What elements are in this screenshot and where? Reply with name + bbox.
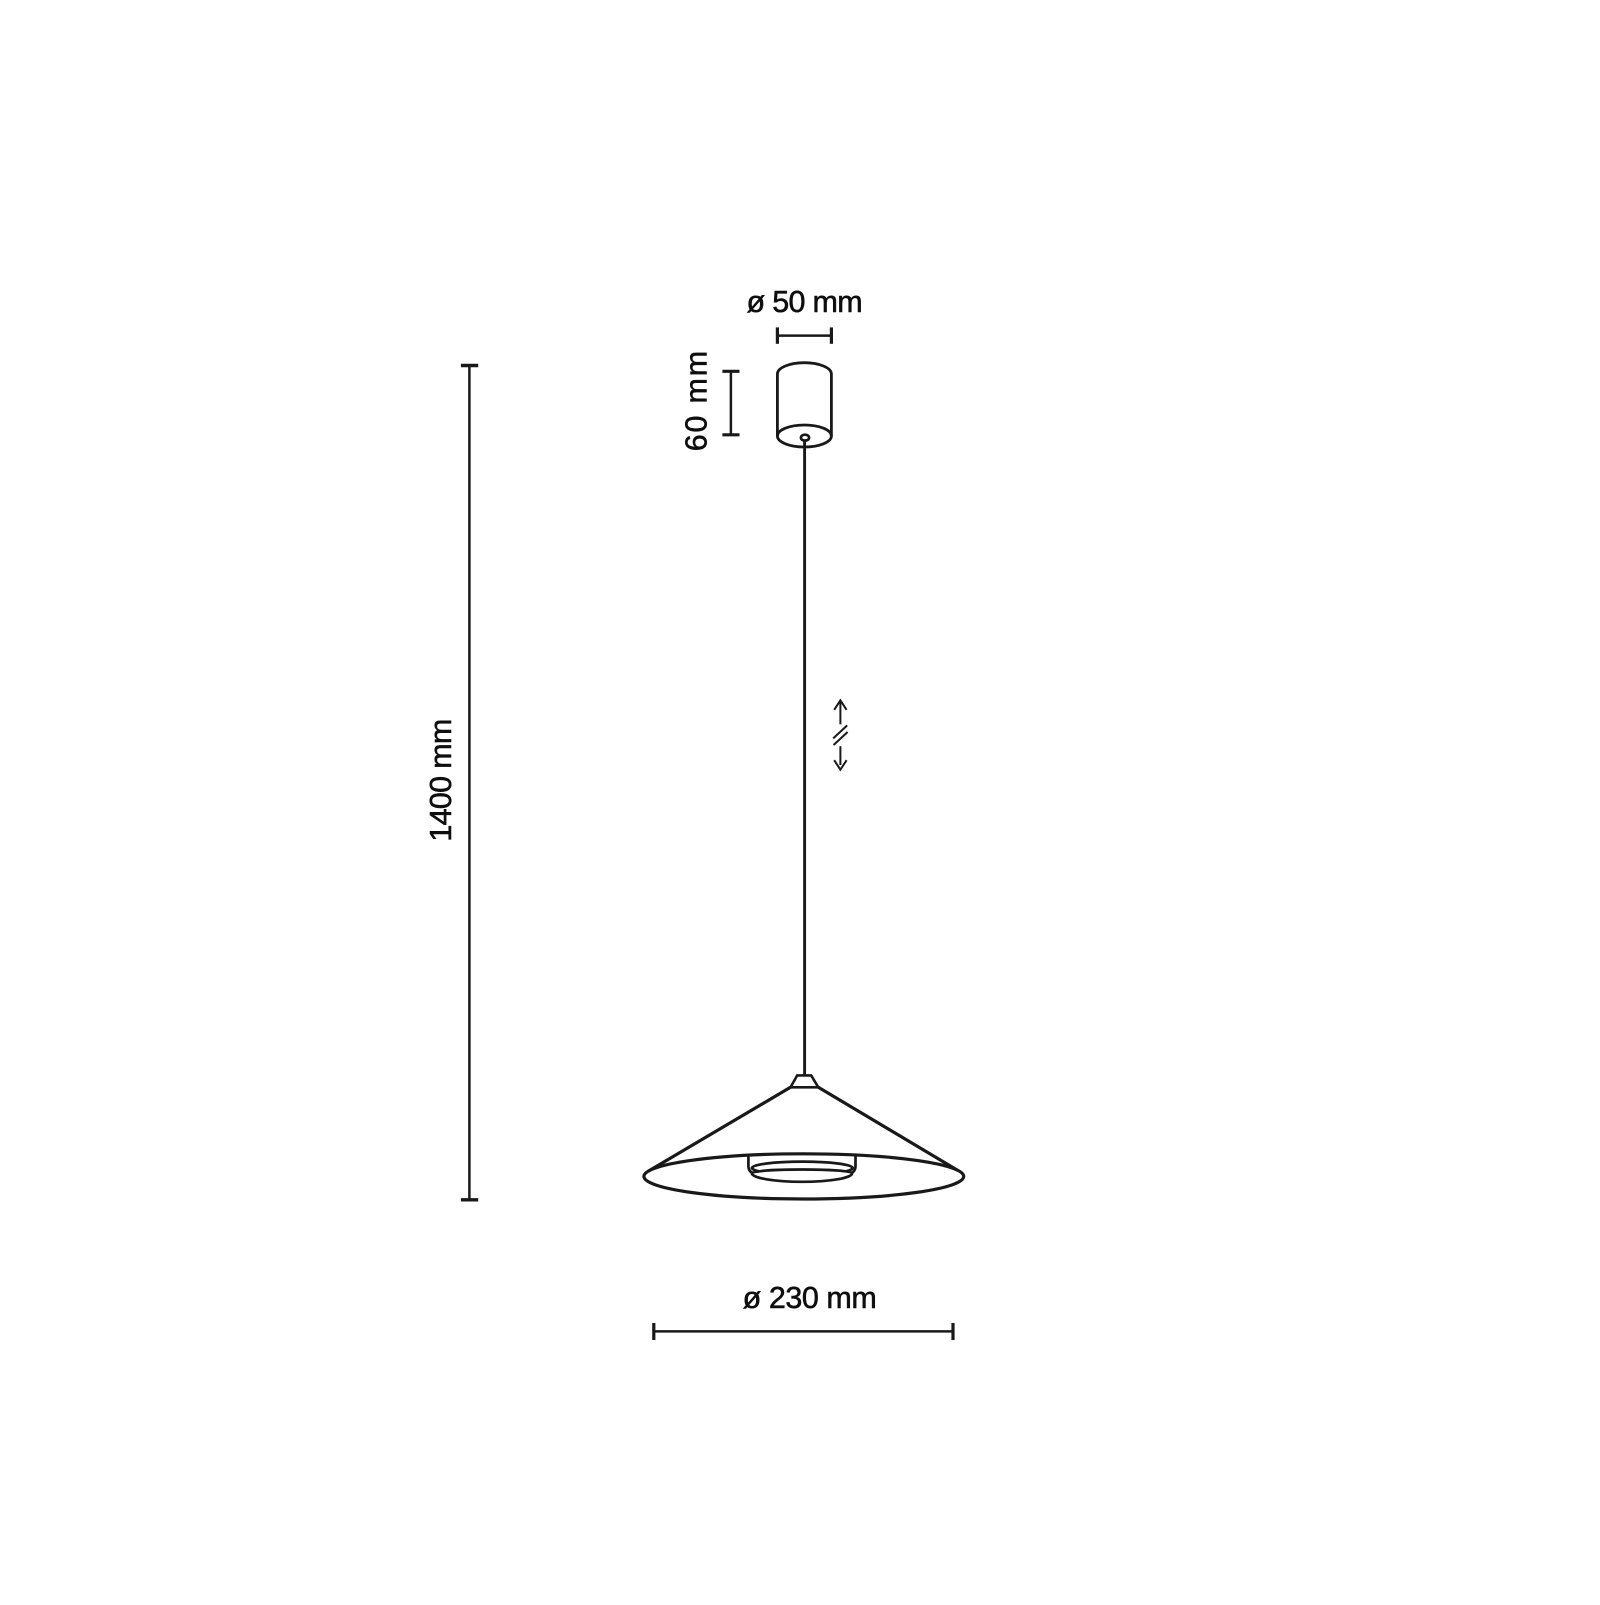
svg-text:60 mm: 60 mm <box>680 349 714 451</box>
svg-text:ø 50 mm: ø 50 mm <box>746 285 861 319</box>
svg-text:1400 mm: 1400 mm <box>424 719 458 841</box>
svg-text:ø 230 mm: ø 230 mm <box>743 1281 877 1315</box>
